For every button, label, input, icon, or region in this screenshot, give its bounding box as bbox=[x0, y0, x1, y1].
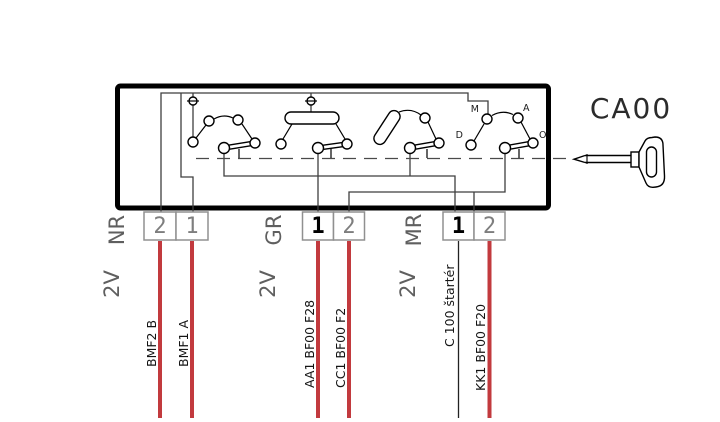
wiper-pivot bbox=[313, 143, 324, 154]
connector-label-nr: NR bbox=[105, 215, 129, 245]
terminal-number-nr-1: 1 bbox=[185, 214, 198, 239]
terminal-number-nr-2: 2 bbox=[153, 214, 166, 239]
wiring-diagram-canvas: D M A O 2 1 1 2 1 2 NR GR MR 2V 2V 2V bbox=[0, 0, 720, 422]
wiring-diagram-page: D M A O 2 1 1 2 1 2 NR GR MR 2V 2V 2V bbox=[0, 0, 720, 422]
wire-label-mr-1: C 100 štartér bbox=[442, 264, 457, 347]
connector-label-gr: GR bbox=[262, 215, 286, 246]
position-label-a: A bbox=[523, 103, 530, 114]
wiper-pivot bbox=[500, 143, 511, 154]
wire-label-nr-2: BMF2 B bbox=[144, 320, 159, 367]
wiper-pivot bbox=[219, 143, 230, 154]
position-label-o: O bbox=[539, 130, 546, 141]
terminal-number-mr-1: 1 bbox=[452, 214, 465, 239]
position-label-m: M bbox=[471, 104, 479, 115]
ignition-key-icon bbox=[574, 137, 665, 187]
terminal-number-gr-2: 2 bbox=[342, 214, 355, 239]
connector-gauge-nr: 2V bbox=[100, 270, 124, 298]
wire-label-gr-2: CC1 BF00 F2 bbox=[333, 308, 348, 388]
component-code-label: CA00 bbox=[590, 92, 672, 125]
key-head bbox=[639, 137, 665, 187]
wiper-pivot bbox=[405, 143, 416, 154]
connector-label-mr: MR bbox=[402, 214, 426, 247]
contact-pill bbox=[285, 112, 339, 124]
wire-label-nr-1: BMF1 A bbox=[176, 320, 191, 367]
terminal-number-mr-2: 2 bbox=[483, 214, 496, 239]
terminal-number-gr-1: 1 bbox=[311, 214, 324, 239]
external-wires bbox=[160, 241, 490, 418]
wire-label-gr-1: AA1 BF00 F28 bbox=[302, 300, 317, 388]
connector-gauge-mr: 2V bbox=[396, 270, 420, 298]
position-label-d: D bbox=[456, 130, 463, 141]
connector-gauge-gr: 2V bbox=[256, 270, 280, 298]
key-collar bbox=[631, 152, 639, 167]
wire-label-mr-2: KK1 BF00 F20 bbox=[473, 304, 488, 391]
